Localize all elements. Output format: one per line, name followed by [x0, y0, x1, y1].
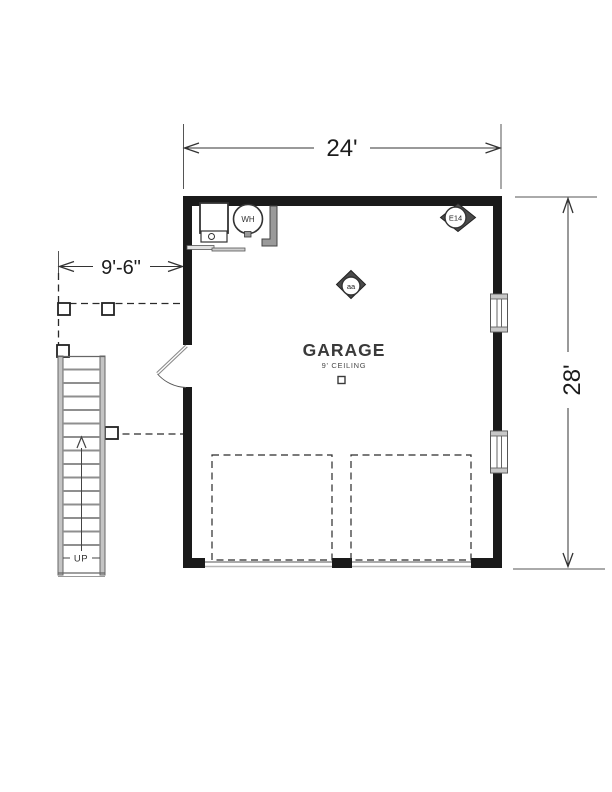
window-cap	[491, 431, 508, 436]
garage-door-right-outline	[351, 455, 471, 560]
window-lower	[491, 431, 508, 473]
wall-right-upper	[493, 196, 502, 295]
floor-plan-drawing: 24' 28' 9'-6"	[0, 0, 612, 792]
porch-post	[102, 303, 114, 315]
dimension-top-24ft: 24'	[184, 124, 502, 189]
room-name: GARAGE	[303, 340, 386, 360]
floor-drain-icon	[338, 377, 345, 384]
stairs-up-label: UP	[74, 554, 88, 565]
shelf-board	[187, 246, 214, 250]
entry-door	[158, 346, 187, 388]
water-heater: WH	[234, 205, 263, 238]
window-upper	[491, 294, 508, 332]
marker-e14: E14	[441, 204, 476, 232]
shelf-board	[212, 248, 245, 251]
wall-right-middle	[493, 332, 502, 432]
door-swing-arc	[158, 374, 187, 388]
stairs: UP	[58, 356, 105, 577]
porch-post	[58, 303, 70, 315]
wall-bottom-center-segment	[332, 558, 352, 568]
dimension-label-height: 28'	[559, 364, 586, 395]
stair-stringer-right	[100, 356, 105, 575]
dimension-label-porch: 9'-6"	[101, 257, 141, 279]
room-ceiling-note: 9' CEILING	[322, 361, 367, 370]
window-frame	[491, 431, 508, 473]
door-leaf-inner	[158, 346, 187, 374]
furnace-body	[200, 203, 228, 233]
wall-bottom-left-segment	[183, 558, 205, 568]
marker-aa: aa	[337, 271, 366, 299]
wall-left-lower	[183, 387, 192, 568]
water-heater-label: WH	[241, 215, 255, 224]
floor-plan-page: 24' 28' 9'-6"	[0, 0, 612, 792]
dimension-left-9ft6in: 9'-6"	[59, 251, 184, 279]
porch-post	[57, 345, 69, 357]
window-cap	[491, 468, 508, 473]
window-cap	[491, 294, 508, 299]
room-label: GARAGE 9' CEILING	[303, 340, 386, 384]
wall-left-upper	[183, 196, 192, 345]
porch-post	[105, 427, 118, 439]
marker-e14-label: E14	[449, 213, 462, 222]
furnace-valve-icon	[209, 234, 215, 240]
dimension-label-width: 24'	[326, 135, 357, 162]
dimension-right-28ft: 28'	[513, 197, 605, 569]
furnace-unit	[200, 203, 228, 242]
water-heater-vent	[245, 232, 252, 238]
garage-door-left-outline	[212, 455, 332, 560]
stair-stringer-left	[58, 356, 63, 575]
window-cap	[491, 327, 508, 332]
window-frame	[491, 294, 508, 332]
wall-bottom-right-segment	[471, 558, 502, 568]
utility-partition-wall	[262, 206, 277, 246]
up-arrow-icon	[77, 437, 86, 448]
garage-door-outlines	[212, 455, 471, 560]
shelf	[187, 246, 245, 252]
wall-right-lower	[493, 473, 502, 568]
wall-top	[183, 196, 502, 206]
marker-aa-label: aa	[347, 282, 356, 291]
